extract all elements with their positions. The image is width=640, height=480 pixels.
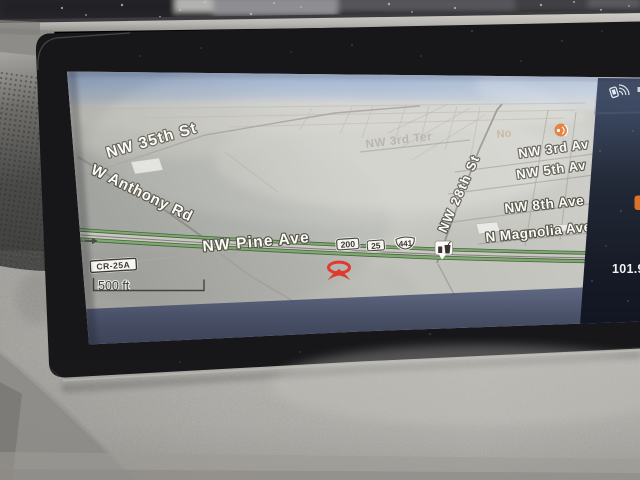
svg-text:441: 441 [398,239,412,249]
